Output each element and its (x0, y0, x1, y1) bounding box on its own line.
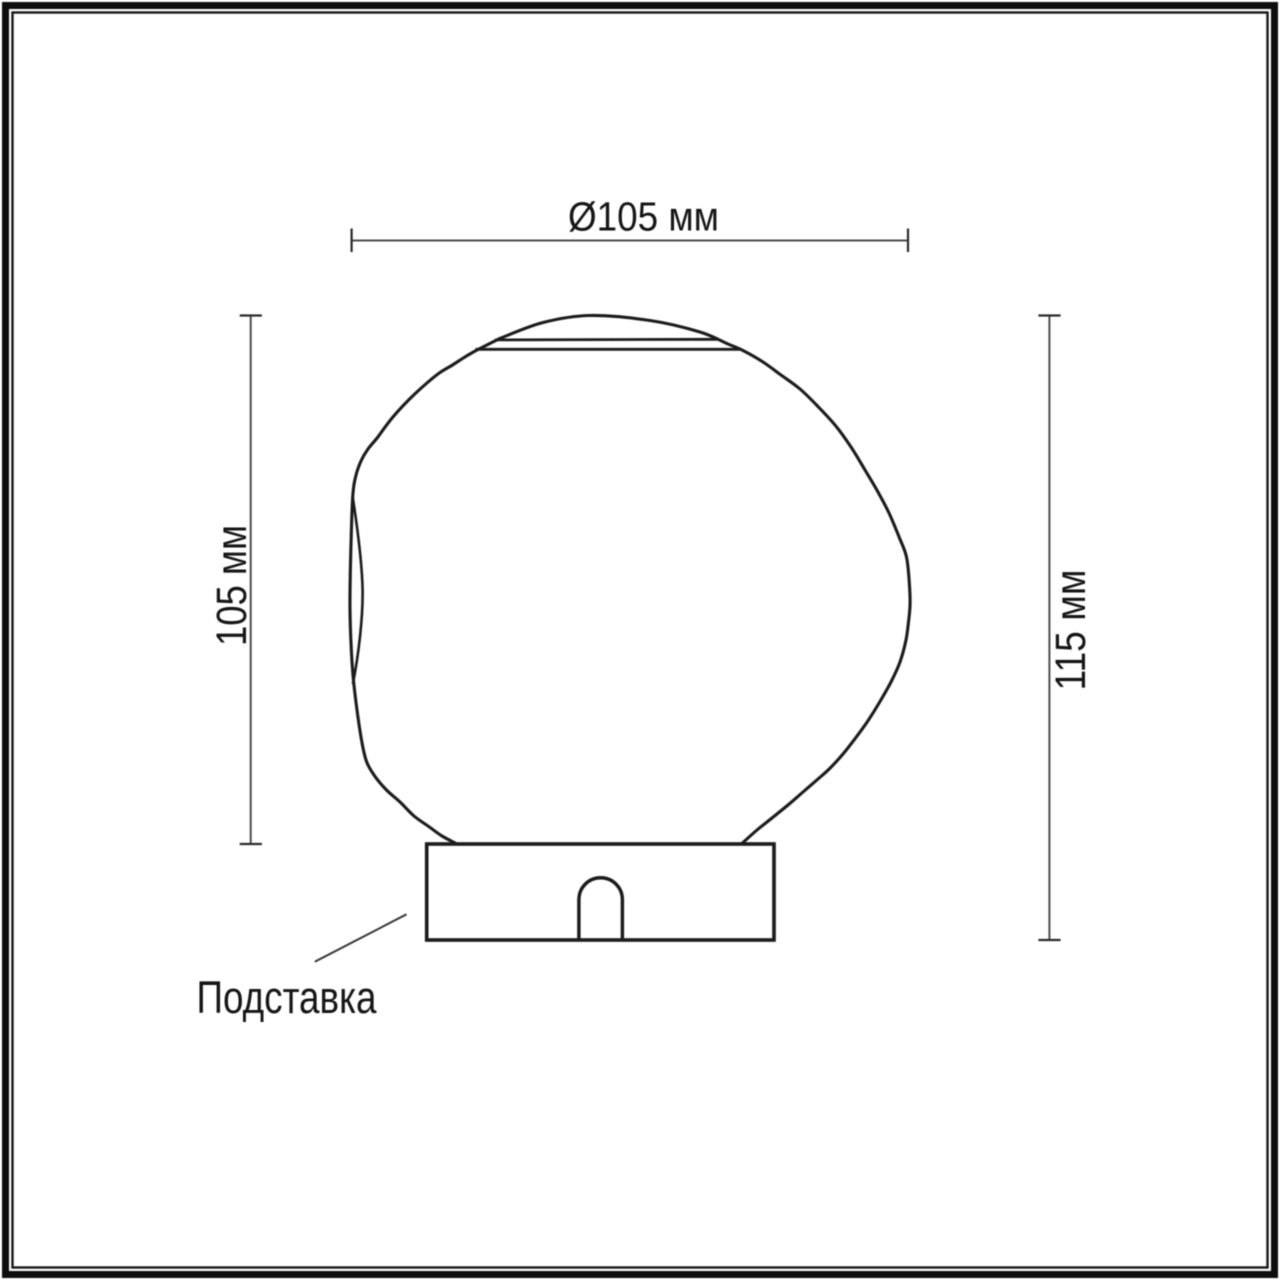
svg-text:115 мм: 115 мм (1047, 570, 1095, 691)
svg-text:Ø105 мм: Ø105 мм (568, 194, 719, 240)
svg-text:105 мм: 105 мм (208, 525, 256, 646)
svg-text:Подставка: Подставка (197, 972, 378, 1023)
